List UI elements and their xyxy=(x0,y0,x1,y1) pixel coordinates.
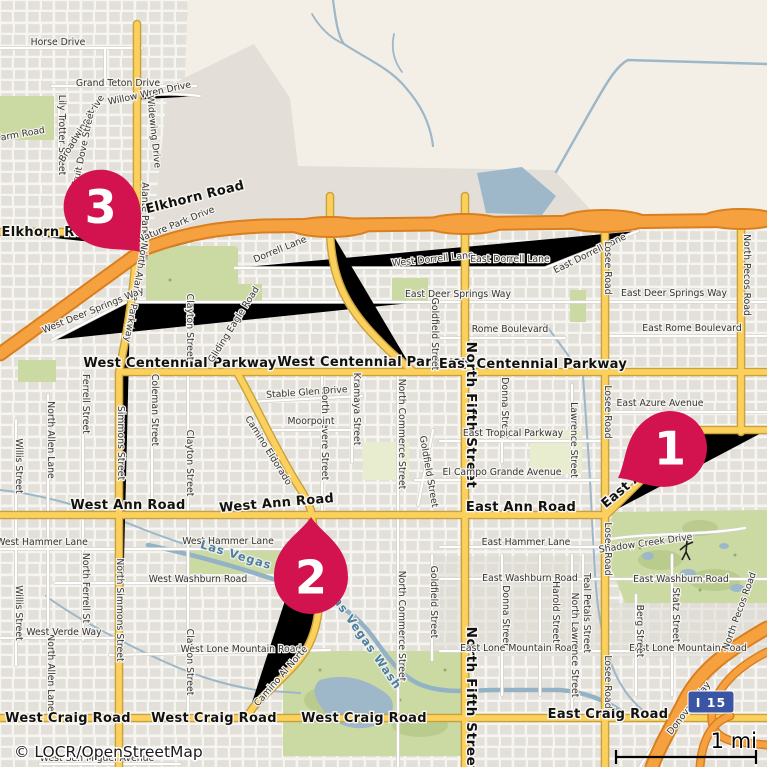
road-label: Goldfield Street xyxy=(428,566,439,639)
road-label: West Washburn Road xyxy=(149,574,248,585)
road-label: North Ferrell St xyxy=(80,553,91,624)
road-label: Willis Street xyxy=(13,438,24,494)
road-label: North Simmons Street xyxy=(114,558,125,662)
marker-number: 1 xyxy=(654,422,686,476)
road-label: Rome Boulevard xyxy=(472,324,549,335)
road-label: East Craig Road xyxy=(548,707,669,722)
road-label: Lawrence Street xyxy=(568,402,579,478)
road-label: Losee Road xyxy=(602,385,613,438)
road-label: East Deer Springs Way xyxy=(405,289,511,300)
road-label: East Lone Mountain Road xyxy=(460,643,578,654)
marker-number: 3 xyxy=(85,180,117,234)
road-label: Berg Street xyxy=(634,605,645,658)
road-label: Losee Road xyxy=(602,241,613,294)
road-label: North Pecos Road xyxy=(741,234,752,316)
road-label: Ferrell Street xyxy=(80,374,91,434)
desert-layer xyxy=(150,0,767,243)
road-label: West Ann Road xyxy=(70,498,185,513)
road-label: Statz Street xyxy=(670,588,681,643)
road-label: East Tropical Parkway xyxy=(463,428,564,439)
road-label: West Lone Mountain Road xyxy=(181,644,302,655)
road-label: East Dorrell Lane xyxy=(470,254,550,265)
road-label: West Craig Road xyxy=(151,711,277,726)
scale-bar-label: 1 mi xyxy=(711,729,757,753)
road-label: Harold Street xyxy=(550,581,561,643)
road-label: Willis Street xyxy=(13,585,24,641)
interstate-shield-label: I 15 xyxy=(696,695,726,710)
marker-number: 2 xyxy=(295,551,327,605)
road-label: East Deer Springs Way xyxy=(621,288,727,299)
road-label: Donna Street xyxy=(500,585,511,647)
interstate-shield: I 15 xyxy=(688,691,734,713)
road-label: North Commerce Street xyxy=(396,571,407,682)
road-label: North Lawrence Street xyxy=(569,593,580,698)
road-label: West Craig Road xyxy=(5,711,131,726)
road-label: East Rome Boulevard xyxy=(642,323,742,334)
road-label: Teal Petals Street xyxy=(581,572,592,653)
road-label: Clayton Street xyxy=(184,629,195,696)
road-label: Clayton Street xyxy=(184,430,195,497)
map-canvas[interactable]: Horse DriveGrand Teton DriveWillow Wren … xyxy=(0,0,767,767)
road-label: Simmons Street xyxy=(115,406,126,481)
road-label: Coleman Street xyxy=(149,374,160,447)
road-label: West Hammer Lane xyxy=(0,537,88,548)
road-label: North Allen Lane xyxy=(45,401,56,479)
road-label: Kramaya Street xyxy=(351,373,362,446)
map-svg[interactable]: Horse DriveGrand Teton DriveWillow Wren … xyxy=(0,0,767,767)
road-label: West Verde Way xyxy=(26,627,102,638)
attribution: © LOCR/OpenStreetMap xyxy=(14,743,203,761)
road-label: Horse Drive xyxy=(31,37,86,48)
road-label: West Centennial Parkway xyxy=(83,356,277,371)
road-label: North Revere Street xyxy=(319,388,330,481)
road-label: North Commerce Street xyxy=(396,379,407,490)
road-label: East Ann Road xyxy=(466,500,576,515)
road-label: West Craig Road xyxy=(301,711,427,726)
road-label: East Washburn Road xyxy=(482,573,578,584)
road-label: North Allen Lane xyxy=(45,634,56,712)
road-label: East Washburn Road xyxy=(633,574,729,585)
road-label: El Campo Grande Avenue xyxy=(443,467,562,478)
road-label: Clayton Street xyxy=(184,294,195,361)
road-label: Moorpoint xyxy=(288,416,335,427)
road-label: Losee Road xyxy=(602,655,613,708)
road-label: Goldfield Street xyxy=(429,298,440,371)
road-label: East Azure Avenue xyxy=(617,398,704,409)
road-label: East Hammer Lane xyxy=(482,537,571,548)
